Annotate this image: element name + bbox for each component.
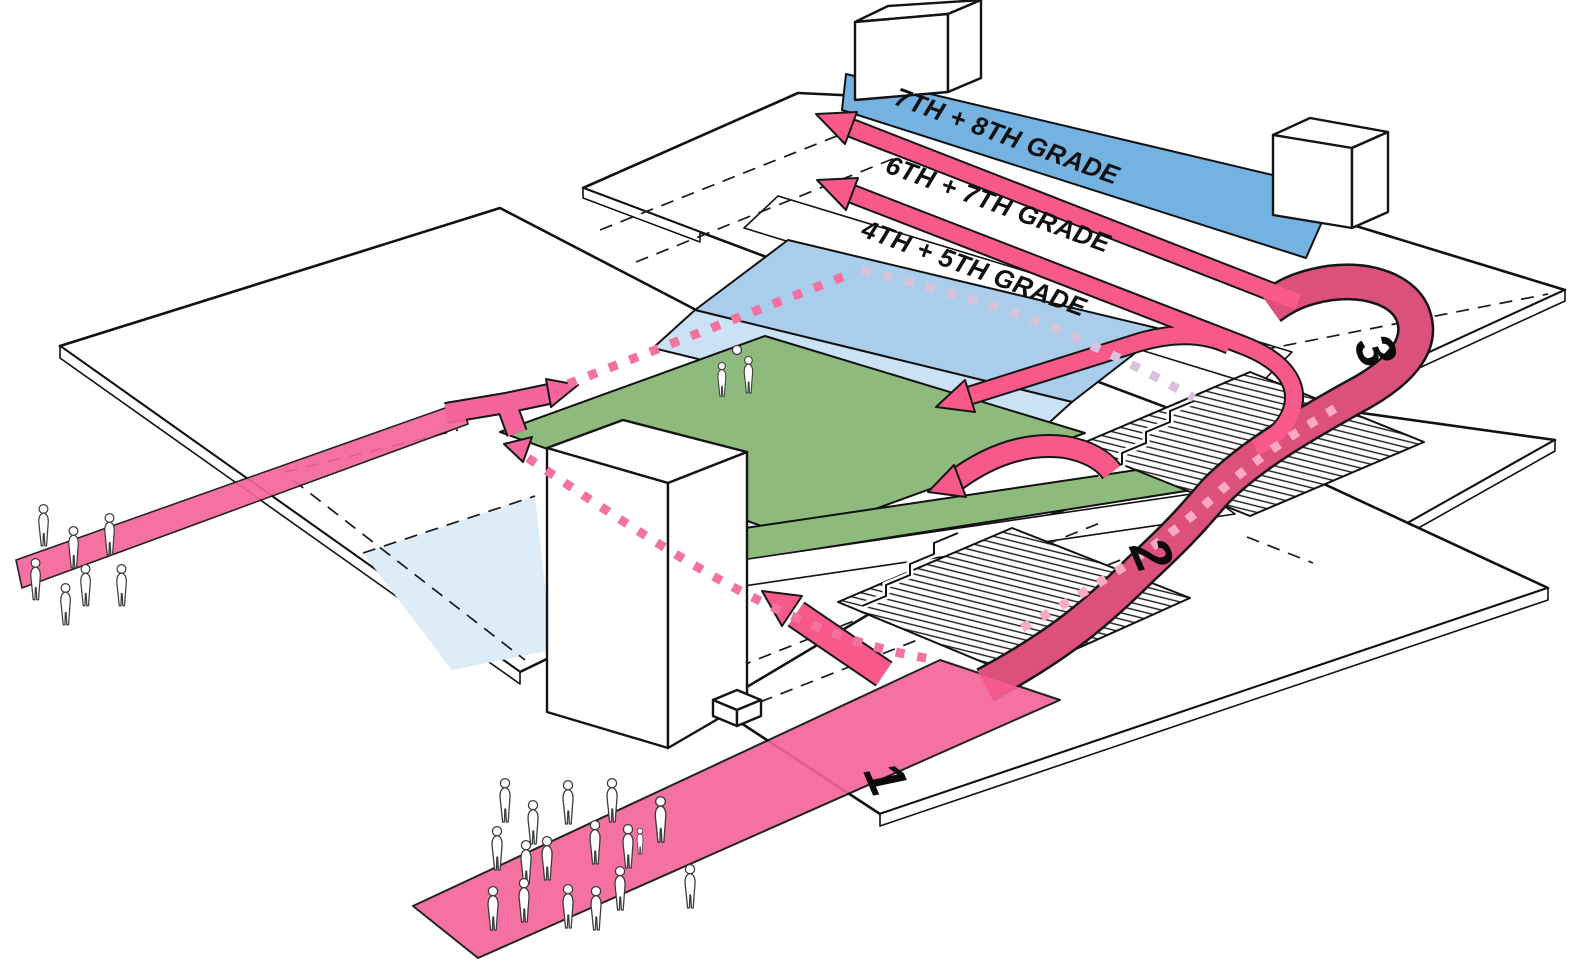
axon-diagram: 7TH + 8TH GRADE 6TH + 7TH GRADE 4TH + 5T… — [0, 0, 1582, 977]
person-icon — [117, 565, 126, 606]
person-icon — [591, 887, 601, 930]
person-icon — [637, 828, 643, 854]
person-icon — [519, 879, 529, 922]
person-icon — [615, 867, 625, 910]
person-icon — [607, 779, 617, 822]
person-icon — [81, 565, 90, 606]
roof-tower-left — [855, 0, 981, 100]
person-icon — [744, 357, 752, 393]
roof-tower-right — [1273, 118, 1388, 228]
person-icon — [528, 801, 538, 844]
person-icon — [542, 837, 552, 880]
person-icon — [590, 821, 600, 864]
person-icon — [563, 781, 573, 824]
person-icon — [563, 885, 573, 928]
ball-icon — [733, 346, 742, 355]
person-icon — [39, 505, 48, 546]
person-icon — [31, 559, 40, 600]
person-icon — [492, 827, 502, 870]
person-icon — [61, 584, 70, 625]
person-icon — [500, 779, 510, 822]
person-icon — [718, 362, 726, 396]
person-icon — [105, 514, 114, 555]
person-icon — [488, 887, 498, 930]
person-icon — [685, 865, 695, 908]
person-icon — [655, 797, 665, 843]
person-icon — [69, 527, 78, 568]
person-icon — [623, 825, 633, 868]
person-icon — [521, 841, 531, 884]
